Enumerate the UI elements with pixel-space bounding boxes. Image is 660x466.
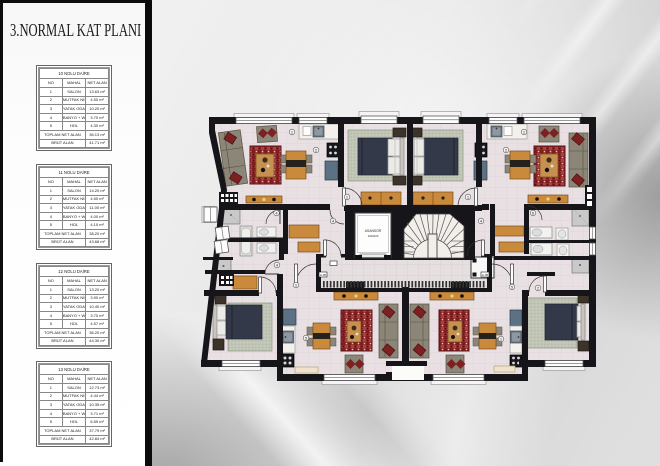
svg-text:100/220: 100/220 [368, 234, 379, 238]
svg-text:ASANSÖR: ASANSÖR [365, 229, 382, 233]
svg-text:A.05: A.05 [320, 273, 327, 277]
svg-text:A.05: A.05 [482, 273, 489, 277]
